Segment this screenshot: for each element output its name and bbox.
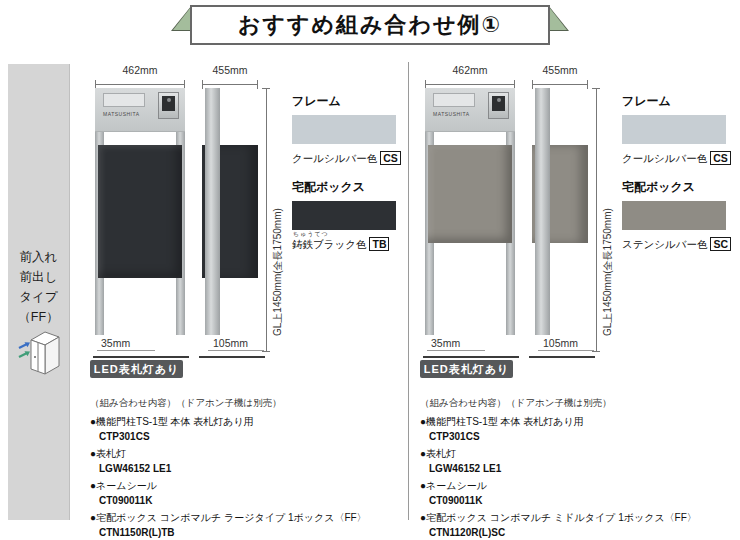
front-offset-dim: 35mm <box>101 337 130 349</box>
list-item: ●表札灯 LGW46152 LE1 <box>420 447 732 474</box>
item-code: CT090011K <box>429 495 732 506</box>
front-offset-line <box>97 350 155 351</box>
frame-color-name: クールシルバー色CS <box>622 151 730 166</box>
list-item: ●機能門柱TS-1型 本体 表札灯あり用 CTP301CS <box>420 415 732 442</box>
side-depth-dim: 455mm <box>202 64 258 76</box>
title-banner: おすすめ組み合わせ例① <box>190 5 550 45</box>
ground-line-side <box>529 356 595 358</box>
box-color-furigana: ちゅうてつ <box>293 230 329 239</box>
post-head-panel: MATSUSHITA <box>425 88 515 132</box>
panel-divider <box>408 62 409 520</box>
item-label: ●表札灯 <box>420 447 732 461</box>
height-dim: GL上1450mm(全長1750mm) <box>271 208 285 336</box>
item-label: ●宅配ボックス コンボマルチ ミドルタイプ 1ボックス〈FF〉 <box>420 511 732 525</box>
front-width-dim: 462mm <box>95 64 185 76</box>
nameplate-text: MATSUSHITA <box>103 111 139 117</box>
frame-color-code: CS <box>710 151 731 165</box>
box-color-code: SC <box>710 237 731 251</box>
box-color-text: 鋳鉄ブラック色 <box>292 238 366 250</box>
side-offset-dim: 105mm <box>213 337 248 349</box>
frame-swatch <box>622 115 726 144</box>
frame-swatch <box>292 115 396 144</box>
type-label: 前入れ 前出し タイプ （FF） <box>8 247 69 327</box>
intercom-camera-lens <box>167 98 171 102</box>
type-label-line: （FF） <box>8 307 69 327</box>
box-color-name: ステンシルバー色SC <box>622 237 730 252</box>
side-offset-line <box>208 350 264 351</box>
list-item: ●機能門柱TS-1型 本体 表札灯あり用 CTP301CS <box>90 415 402 442</box>
intercom-camera-lens <box>497 98 501 102</box>
item-label: ●宅配ボックス コンボマルチ ラージタイプ 1ボックス〈FF〉 <box>90 511 402 525</box>
type-label-line: 前入れ <box>8 247 69 267</box>
box-color-text: ステンシルバー色 <box>622 238 707 250</box>
delivery-box-front-view <box>98 145 182 278</box>
item-code: CTP301CS <box>99 431 402 442</box>
frame-swatch-label: フレーム <box>622 93 730 110</box>
post-head-panel: MATSUSHITA <box>95 88 185 132</box>
ground-line-side <box>199 356 265 358</box>
item-label: ●表札灯 <box>90 447 402 461</box>
item-code: LGW46152 LE1 <box>429 463 732 474</box>
led-badge: LED表札灯あり <box>90 360 183 378</box>
item-code: CT090011K <box>99 495 402 506</box>
box-color-code: TB <box>369 237 389 251</box>
post-side-view <box>205 88 220 335</box>
nameplate <box>103 93 145 107</box>
side-offset-dim: 105mm <box>543 337 578 349</box>
front-width-dim: 462mm <box>425 64 515 76</box>
item-code: LGW46152 LE1 <box>99 463 402 474</box>
catalog-page: おすすめ組み合わせ例① 前入れ 前出し タイプ （FF） 462m <box>0 0 740 540</box>
list-item: ●宅配ボックス コンボマルチ ラージタイプ 1ボックス〈FF〉 CTN1150R… <box>90 511 402 538</box>
ground-line-front <box>93 356 189 358</box>
ground-line-front <box>423 356 519 358</box>
intercom-unit <box>488 92 509 119</box>
box-swatch-label: 宅配ボックス <box>622 179 730 196</box>
box-color-name: ちゅうてつ鋳鉄ブラック色TB <box>292 237 400 252</box>
combination-list: （組み合わせ内容）（ドアホン子機は別売） ●機能門柱TS-1型 本体 表札灯あり… <box>420 397 732 538</box>
type-sidebar: 前入れ 前出し タイプ （FF） <box>8 64 70 520</box>
item-label: ●機能門柱TS-1型 本体 表札灯あり用 <box>90 415 402 429</box>
item-code: CTN1120R(L)SC <box>429 527 732 538</box>
box-swatch <box>622 201 726 230</box>
list-item: ●ネームシール CT090011K <box>420 479 732 506</box>
combo-panel-1: 462mm 455mm MATSUSHITA GL上1450mm(全長1750m… <box>85 60 405 535</box>
item-code: CTN1150R(L)TB <box>99 527 402 538</box>
height-dim-line <box>592 88 600 352</box>
intercom-unit <box>158 92 179 119</box>
type-label-line: タイプ <box>8 287 69 307</box>
frame-color-name: クールシルバー色CS <box>292 151 400 166</box>
side-offset-line <box>538 350 594 351</box>
nameplate <box>433 93 475 107</box>
list-header: （組み合わせ内容）（ドアホン子機は別売） <box>420 397 732 410</box>
front-in-front-out-box-icon <box>17 326 61 386</box>
led-badge: LED表札灯あり <box>420 360 513 378</box>
list-item: ●宅配ボックス コンボマルチ ミドルタイプ 1ボックス〈FF〉 CTN1120R… <box>420 511 732 538</box>
frame-swatch-label: フレーム <box>292 93 400 110</box>
list-item: ●表札灯 LGW46152 LE1 <box>90 447 402 474</box>
color-swatch-column: フレーム クールシルバー色CS 宅配ボックス ステンシルバー色SC <box>622 93 730 265</box>
front-offset-line <box>427 350 485 351</box>
item-label: ●機能門柱TS-1型 本体 表札灯あり用 <box>420 415 732 429</box>
frame-color-code: CS <box>380 151 401 165</box>
item-label: ●ネームシール <box>420 479 732 493</box>
item-label: ●ネームシール <box>90 479 402 493</box>
page-title: おすすめ組み合わせ例① <box>238 10 502 40</box>
list-header: （組み合わせ内容）（ドアホン子機は別売） <box>90 397 402 410</box>
post-side-view <box>535 88 550 335</box>
box-swatch-label: 宅配ボックス <box>292 179 400 196</box>
side-depth-dim: 455mm <box>532 64 588 76</box>
list-item: ●ネームシール CT090011K <box>90 479 402 506</box>
combination-list: （組み合わせ内容）（ドアホン子機は別売） ●機能門柱TS-1型 本体 表札灯あり… <box>90 397 402 538</box>
height-dim-line <box>262 88 270 352</box>
item-code: CTP301CS <box>429 431 732 442</box>
type-label-line: 前出し <box>8 267 69 287</box>
frame-color-text: クールシルバー色 <box>292 152 377 164</box>
combo-panel-2: 462mm 455mm MATSUSHITA GL上1450mm(全長1750m… <box>415 60 735 535</box>
box-swatch <box>292 201 396 230</box>
height-dim: GL上1450mm(全長1750mm) <box>601 208 615 336</box>
color-swatch-column: フレーム クールシルバー色CS 宅配ボックス ちゅうてつ鋳鉄ブラック色TB <box>292 93 400 265</box>
front-offset-dim: 35mm <box>431 337 460 349</box>
frame-color-text: クールシルバー色 <box>622 152 707 164</box>
delivery-box-front-view <box>428 145 512 243</box>
nameplate-text: MATSUSHITA <box>433 111 469 117</box>
